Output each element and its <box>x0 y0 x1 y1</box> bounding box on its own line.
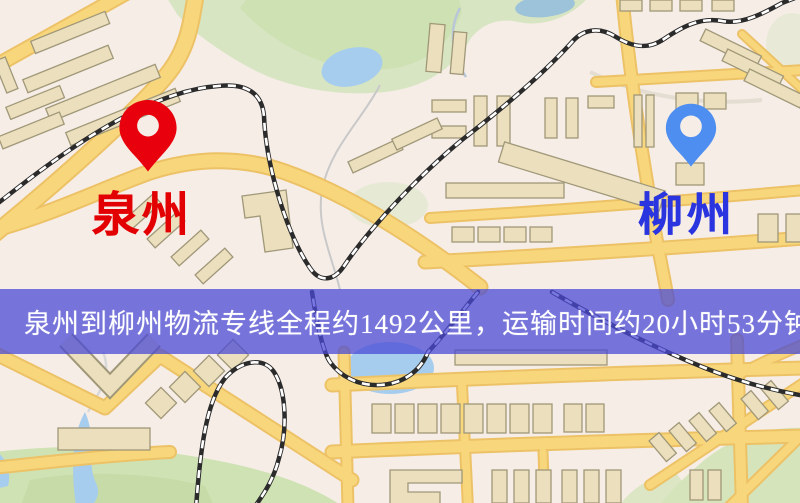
destination-pin-label: 柳州 <box>638 178 736 243</box>
route-info-text: 泉州到柳州物流专线全程约1492公里，运输时间约20小时53分钟. <box>0 302 800 341</box>
origin-pin-label: 泉州 <box>92 176 192 245</box>
destination-pin-icon[interactable] <box>665 102 717 168</box>
map-screenshot: 泉州 柳州 泉州到柳州物流专线全程约1492公里，运输时间约20小时53分钟. <box>0 0 800 503</box>
origin-pin-icon[interactable] <box>118 99 178 172</box>
route-info-banner: 泉州到柳州物流专线全程约1492公里，运输时间约20小时53分钟. <box>0 289 800 354</box>
map-background <box>0 0 800 503</box>
